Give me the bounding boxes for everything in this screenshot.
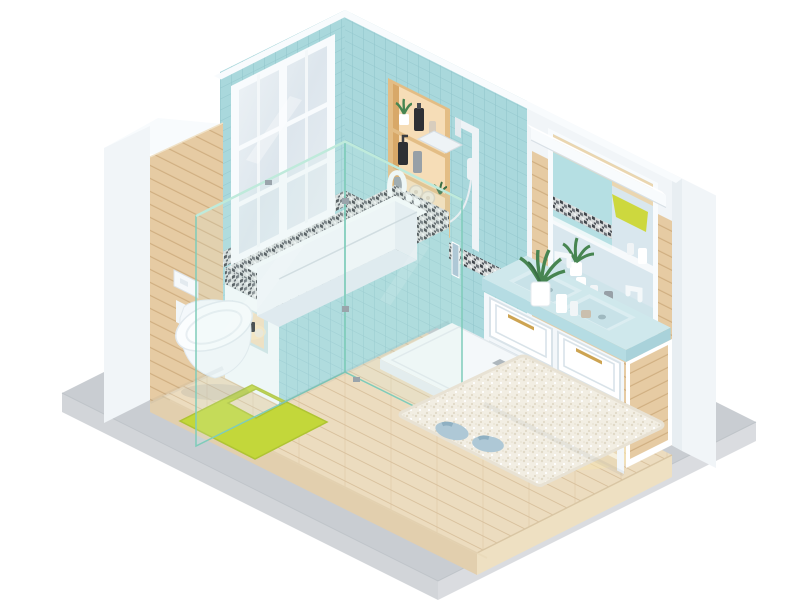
hand-shower xyxy=(467,158,475,180)
glass-clip xyxy=(342,306,349,312)
scene-canvas xyxy=(0,0,800,600)
wall-end-cap xyxy=(682,179,716,469)
door-handle xyxy=(452,242,459,278)
gray-bottle xyxy=(413,151,422,173)
bathroom-isometric-render xyxy=(0,0,800,600)
glass-clip xyxy=(265,180,272,185)
counter-bottle xyxy=(570,301,578,316)
plant-pot xyxy=(531,282,550,306)
wall-end-trim xyxy=(672,174,682,452)
wood-side-panel xyxy=(630,345,668,459)
riser-rail xyxy=(472,132,479,252)
glass-clip xyxy=(342,198,349,204)
sink-drain xyxy=(598,315,606,320)
counter-bottle xyxy=(556,294,567,313)
black-bottle xyxy=(414,108,424,131)
glass-clip xyxy=(353,377,360,382)
counter-jar xyxy=(581,310,591,318)
